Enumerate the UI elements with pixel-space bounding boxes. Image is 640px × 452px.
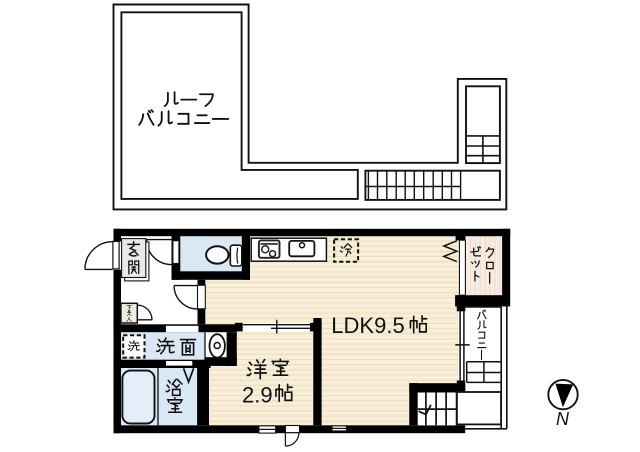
svg-text:N: N [556, 409, 570, 429]
svg-text:LDK9.5: LDK9.5 [331, 313, 404, 338]
svg-text:2.9: 2.9 [242, 383, 273, 408]
